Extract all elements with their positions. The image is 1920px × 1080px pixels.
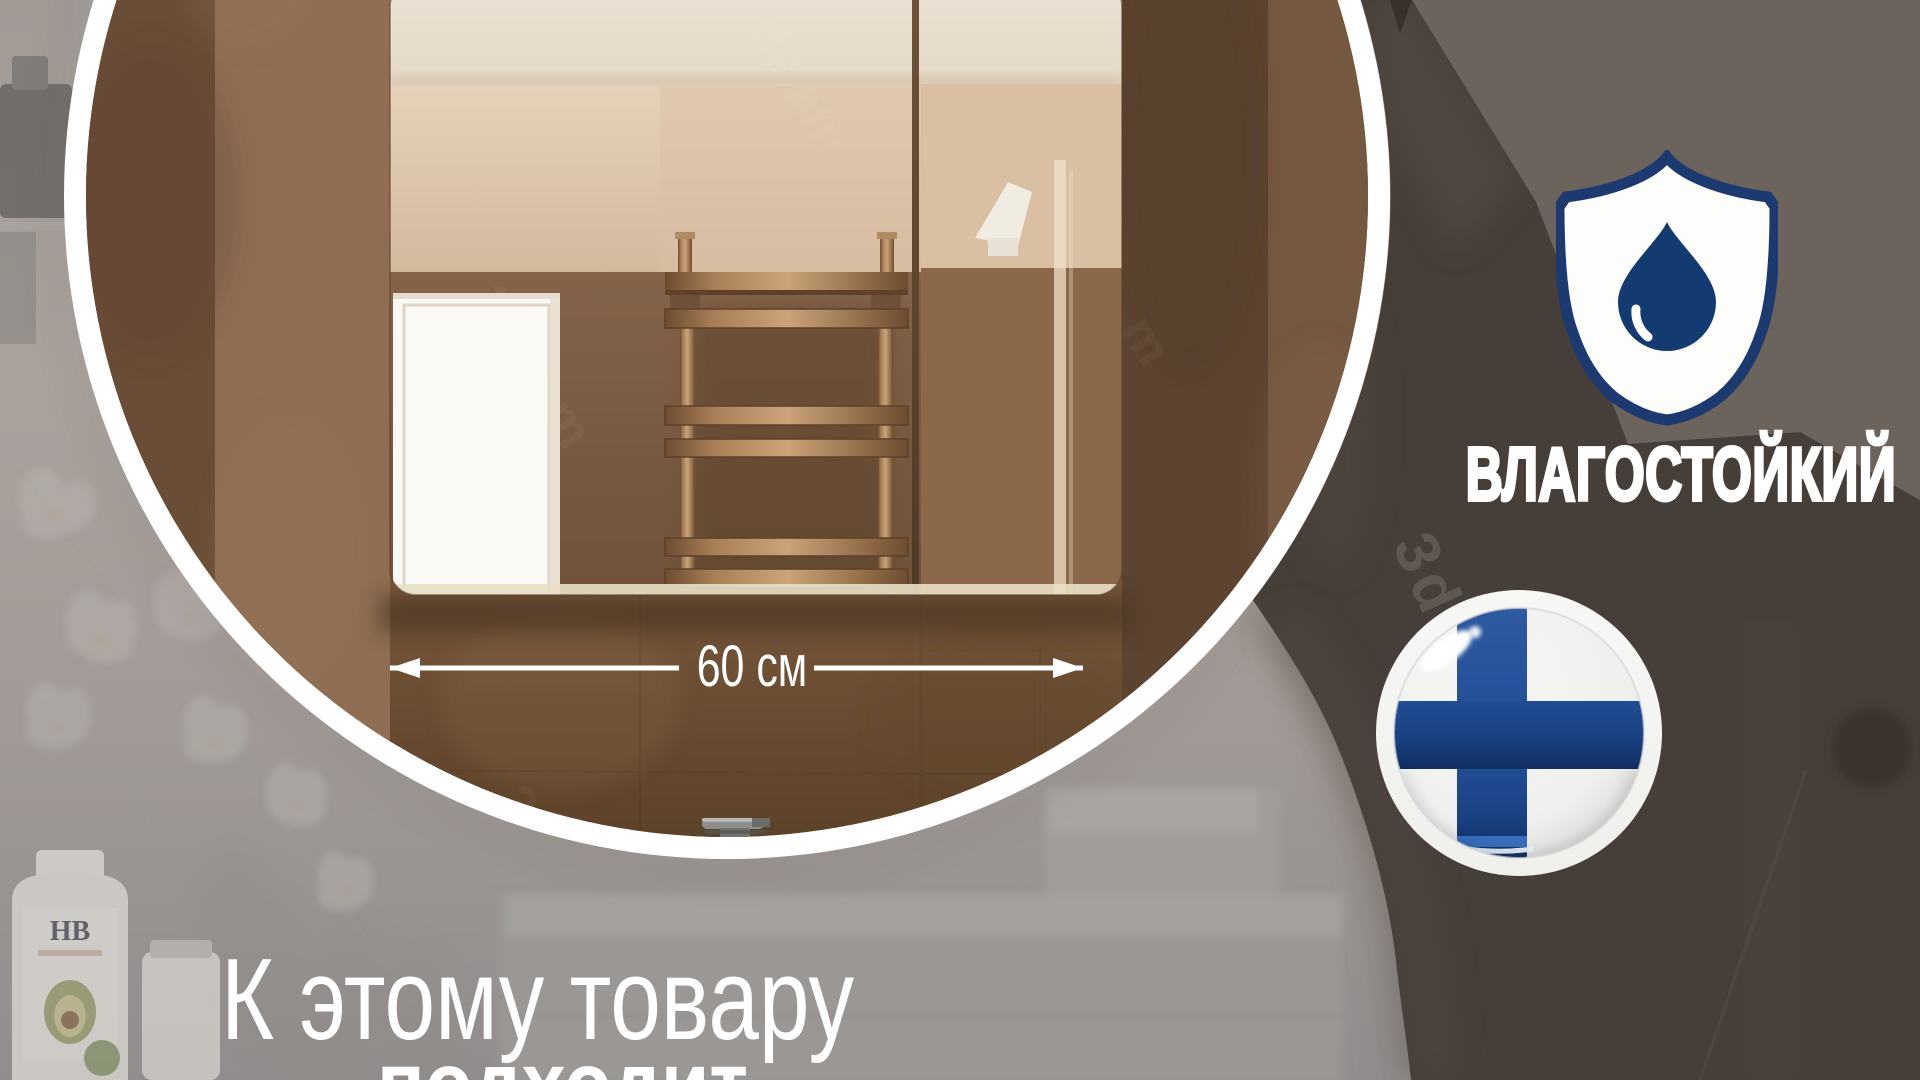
svg-text:HB: HB	[50, 916, 90, 947]
svg-text:60 см: 60 см	[697, 634, 808, 699]
